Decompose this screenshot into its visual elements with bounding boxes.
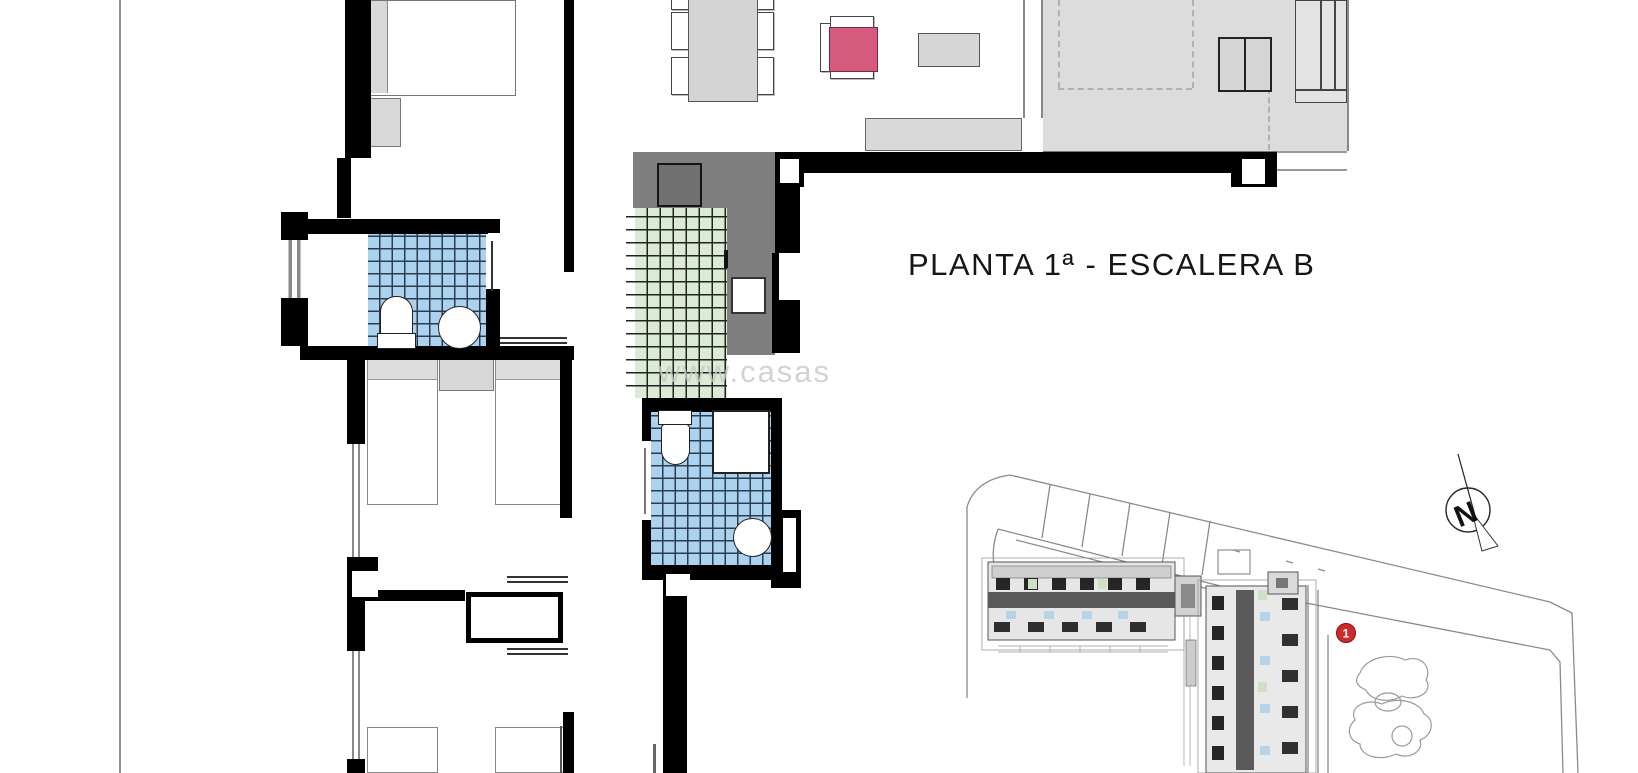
nightstand bbox=[439, 358, 494, 391]
wall bbox=[347, 601, 365, 651]
door-opening bbox=[783, 518, 796, 572]
pool bbox=[1349, 656, 1431, 757]
window bbox=[347, 444, 365, 557]
toilet-bowl bbox=[661, 424, 690, 465]
window bbox=[347, 651, 365, 759]
terrace-edge-line bbox=[1347, 0, 1349, 151]
wall bbox=[300, 346, 574, 360]
side-table bbox=[918, 33, 980, 67]
bed-headboard bbox=[368, 359, 437, 380]
site-building-left bbox=[982, 558, 1201, 652]
wall bbox=[642, 565, 783, 580]
kitchen-counter-top bbox=[633, 152, 775, 208]
door-opening bbox=[666, 574, 690, 596]
toilet-bowl bbox=[380, 296, 413, 337]
wall bbox=[804, 152, 1231, 173]
location-marker-badge: 1 bbox=[1337, 624, 1356, 643]
door-line bbox=[491, 241, 493, 291]
site-plan: 1 N bbox=[950, 430, 1638, 773]
page-border-line bbox=[119, 0, 121, 773]
wall bbox=[365, 590, 465, 601]
terrace-counter-line bbox=[1295, 89, 1347, 91]
wall bbox=[337, 158, 351, 218]
terrace-dashed-line bbox=[1268, 88, 1270, 150]
terrace-table-divider bbox=[1244, 37, 1246, 92]
toilet-tank bbox=[377, 333, 416, 349]
toilet-tank bbox=[658, 410, 692, 425]
terrace-dashed-line bbox=[1192, 0, 1194, 88]
door-leaf bbox=[500, 337, 567, 344]
door-hinge bbox=[724, 250, 728, 268]
shower-tray bbox=[712, 410, 770, 474]
wall bbox=[486, 219, 500, 233]
watermark: www.casas bbox=[658, 354, 831, 390]
sliding-door-track bbox=[507, 648, 568, 655]
pillar-opening bbox=[780, 159, 799, 183]
wall bbox=[307, 219, 488, 234]
wall bbox=[347, 360, 365, 444]
terrace-door-strip bbox=[1025, 0, 1041, 118]
wall bbox=[775, 187, 800, 253]
bed-single bbox=[367, 358, 438, 505]
pillar-opening bbox=[1242, 159, 1265, 184]
bed-headboard bbox=[496, 359, 563, 380]
wardrobe bbox=[466, 592, 563, 643]
window bbox=[281, 240, 308, 298]
terrace-step-line bbox=[1277, 151, 1347, 153]
wall bbox=[347, 759, 365, 773]
wall bbox=[560, 360, 572, 518]
marker-label: 1 bbox=[1343, 627, 1350, 641]
wall bbox=[563, 712, 574, 773]
terrace-door-line bbox=[1041, 0, 1043, 118]
door-line bbox=[560, 726, 562, 773]
terrace-dashed-line bbox=[1058, 0, 1060, 88]
kitchen-tile-ticks bbox=[626, 208, 635, 398]
door-line bbox=[644, 448, 646, 514]
sink bbox=[733, 518, 772, 557]
nightstand bbox=[366, 98, 401, 147]
site-building-right bbox=[1184, 572, 1316, 773]
north-arrow-icon: N bbox=[1446, 454, 1498, 551]
sliding-door-track bbox=[507, 576, 568, 583]
bed-single bbox=[495, 358, 564, 505]
bed-single bbox=[367, 727, 438, 773]
door-line bbox=[653, 744, 656, 773]
terrace-door-line bbox=[1023, 0, 1025, 118]
bed-single bbox=[495, 727, 564, 773]
wall bbox=[663, 580, 687, 773]
page-title: PLANTA 1ª - ESCALERA B bbox=[908, 247, 1315, 283]
terrace-dashed-line bbox=[1058, 88, 1192, 90]
stove bbox=[657, 163, 702, 207]
kitchen-appliance bbox=[731, 277, 766, 314]
terrace-step-line bbox=[1277, 169, 1347, 171]
wall bbox=[345, 0, 371, 158]
wall bbox=[564, 0, 574, 272]
wall bbox=[486, 289, 500, 348]
sink bbox=[438, 306, 481, 349]
terrace-counter-line bbox=[1334, 0, 1336, 90]
floor-plan-page: 1 N www.casas PLANTA 1ª - ESCALERA B bbox=[0, 0, 1638, 773]
door-opening bbox=[352, 571, 378, 597]
door-opening bbox=[779, 253, 800, 300]
dining-table bbox=[688, 0, 758, 102]
terrace-counter-line bbox=[1320, 0, 1322, 90]
armchair-pink-seat bbox=[829, 27, 878, 72]
sofa bbox=[865, 118, 1022, 151]
